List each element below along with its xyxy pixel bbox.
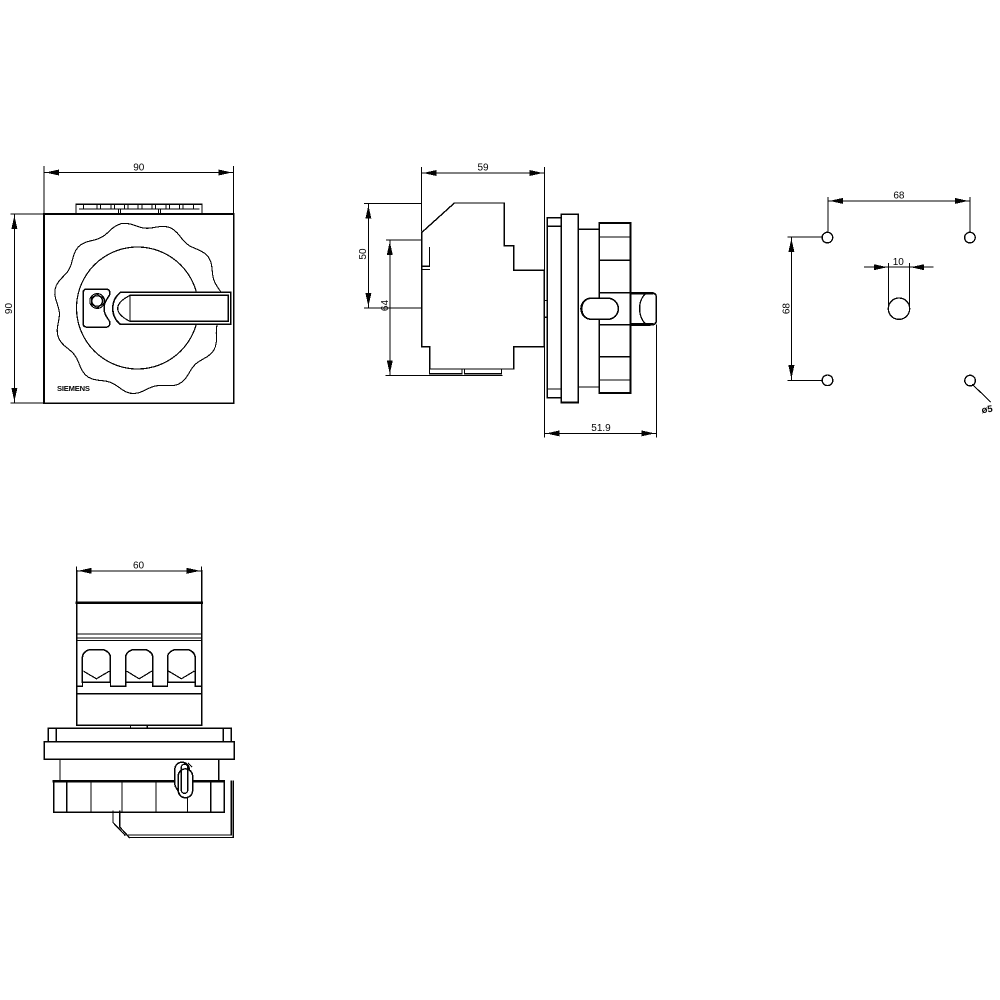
svg-text:90: 90 — [133, 162, 145, 173]
svg-text:10: 10 — [893, 257, 905, 268]
svg-text:59: 59 — [477, 162, 489, 173]
svg-text:60: 60 — [133, 560, 145, 571]
svg-text:90: 90 — [4, 303, 15, 315]
svg-text:64: 64 — [380, 300, 391, 312]
svg-text:68: 68 — [782, 303, 793, 315]
svg-text:SIEMENS: SIEMENS — [57, 384, 90, 393]
svg-text:51.9: 51.9 — [591, 423, 611, 434]
svg-text:68: 68 — [893, 191, 905, 202]
svg-text:50: 50 — [358, 248, 369, 260]
